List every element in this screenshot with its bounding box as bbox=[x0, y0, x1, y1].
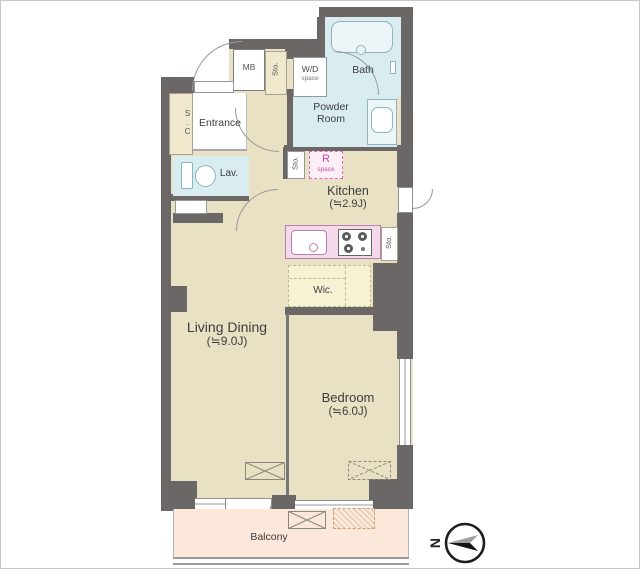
bedroom-size: (≒6.0J) bbox=[298, 406, 398, 419]
lav-niche-box bbox=[175, 200, 207, 214]
wall-bottom-left bbox=[171, 481, 197, 511]
bath-faucet-icon bbox=[356, 45, 366, 55]
storage-hall-text: Sto. bbox=[292, 154, 301, 172]
label-bath: Bath bbox=[331, 64, 395, 76]
storage-top-text: Sto. bbox=[272, 58, 281, 80]
wall-right-upper bbox=[401, 15, 413, 147]
bedroom-window bbox=[399, 359, 411, 445]
powder-line1: Powder bbox=[293, 101, 369, 113]
wall-kitchen-right-upper bbox=[397, 151, 413, 187]
bedroom-name: Bedroom bbox=[298, 391, 398, 406]
r-line1: R bbox=[309, 153, 343, 166]
wall-bedroom-top bbox=[285, 307, 375, 315]
sink-drain-icon bbox=[309, 243, 318, 252]
wall-top-bath bbox=[319, 7, 413, 17]
service-door-opening bbox=[398, 187, 413, 213]
ac-outdoor-unit-box bbox=[288, 511, 326, 529]
label-storage-hall: Sto. bbox=[287, 159, 305, 168]
label-shoe-closet: S.C bbox=[170, 109, 192, 136]
wall-partition-ld-bedroom bbox=[286, 313, 289, 497]
wd-line2: space bbox=[293, 75, 327, 82]
ac-unit-box-living bbox=[245, 462, 285, 480]
label-r-space: R space bbox=[309, 153, 343, 173]
label-living-dining: Living Dining (≒9.0J) bbox=[171, 319, 283, 349]
living-dining-size: (≒9.0J) bbox=[171, 335, 283, 349]
balcony-railing bbox=[173, 557, 409, 565]
wic-rod-line bbox=[289, 278, 345, 280]
label-storage-kitchen: Sto. bbox=[381, 238, 398, 247]
stove-icon bbox=[338, 229, 372, 256]
label-entrance: Entrance bbox=[193, 117, 247, 129]
compass-icon: N bbox=[425, 517, 497, 569]
kitchen-name: Kitchen bbox=[299, 184, 397, 198]
wall-bedroom-right-lower bbox=[397, 445, 413, 481]
storage-kitchen-text: Sto. bbox=[385, 234, 394, 251]
label-bedroom: Bedroom (≒6.0J) bbox=[298, 391, 398, 419]
compass-north-label: N bbox=[427, 538, 443, 548]
ac-unit-box-bedroom bbox=[348, 461, 391, 480]
label-storage-top: Sto. bbox=[265, 65, 287, 74]
label-kitchen: Kitchen (≒2.9J) bbox=[299, 184, 397, 211]
wall-niche-bottom bbox=[173, 213, 223, 223]
wd-line1: W/D bbox=[293, 65, 327, 75]
evacuation-hatch bbox=[333, 508, 375, 529]
label-powder-room: Powder Room bbox=[293, 101, 369, 125]
label-meter-box: MB bbox=[233, 63, 265, 73]
wall-left-notch bbox=[171, 286, 187, 312]
kitchen-size: (≒2.9J) bbox=[299, 198, 397, 211]
label-lavatory: Lav. bbox=[213, 168, 245, 180]
wall-bottom-right-chunk bbox=[369, 479, 413, 509]
wall-right-chunk bbox=[373, 263, 413, 331]
wall-kitchen-right-lower bbox=[397, 213, 413, 265]
label-balcony: Balcony bbox=[221, 531, 317, 543]
kitchen-sink-icon bbox=[291, 230, 327, 255]
entrance-step-line bbox=[193, 149, 247, 151]
wall-bedroom-right-upper bbox=[397, 331, 413, 359]
powder-line2: Room bbox=[293, 113, 369, 125]
r-line2: space bbox=[309, 166, 343, 173]
floor-plan: N Living Dining (≒9.0J) Bedroom (≒6.0J) … bbox=[0, 0, 640, 569]
label-wd-space: W/D space bbox=[293, 65, 327, 82]
living-dining-name: Living Dining bbox=[171, 319, 283, 335]
label-wic: Wic. bbox=[288, 285, 358, 297]
service-door-arc bbox=[413, 189, 433, 209]
toilet-tank-icon bbox=[181, 162, 193, 189]
vanity-bowl-icon bbox=[371, 107, 393, 133]
